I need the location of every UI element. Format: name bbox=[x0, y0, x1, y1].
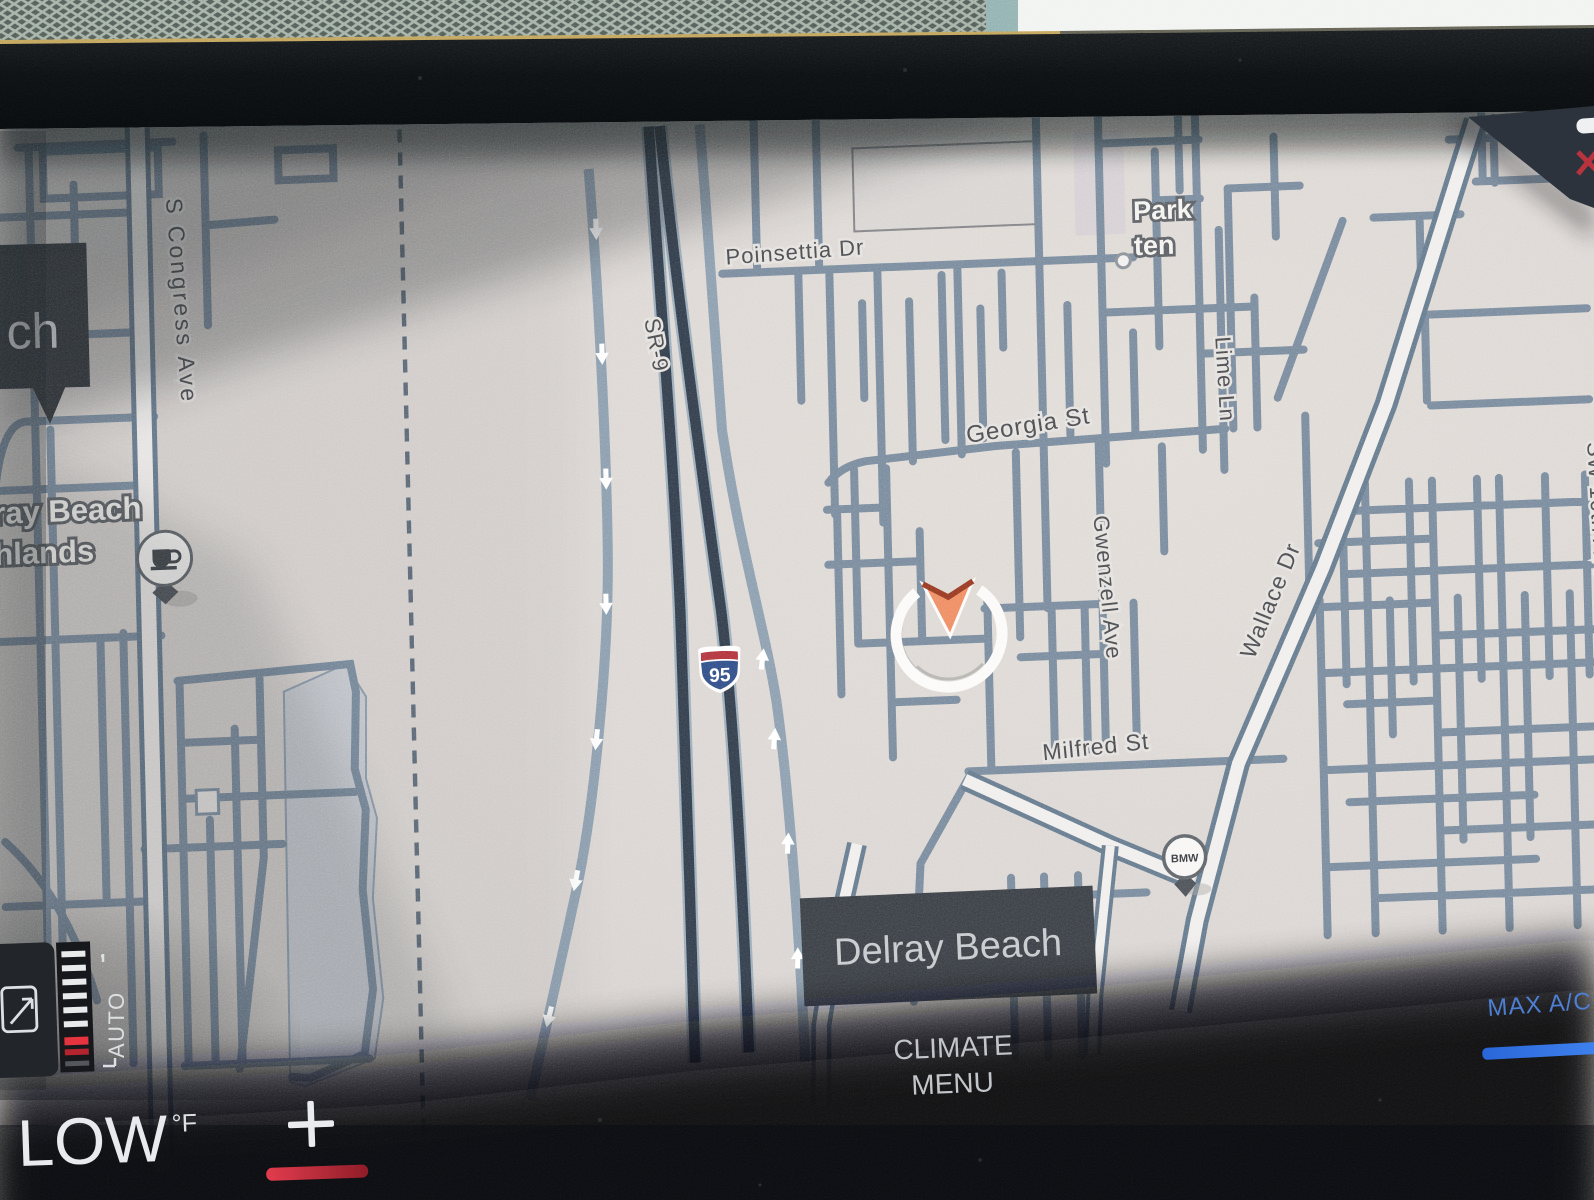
svg-text:CLIMATE: CLIMATE bbox=[893, 1029, 1014, 1065]
svg-text:°F: °F bbox=[171, 1109, 197, 1138]
svg-text:LOW: LOW bbox=[16, 1101, 170, 1180]
svg-text:MENU: MENU bbox=[911, 1066, 995, 1101]
svg-text:AUTO: AUTO bbox=[104, 991, 129, 1058]
